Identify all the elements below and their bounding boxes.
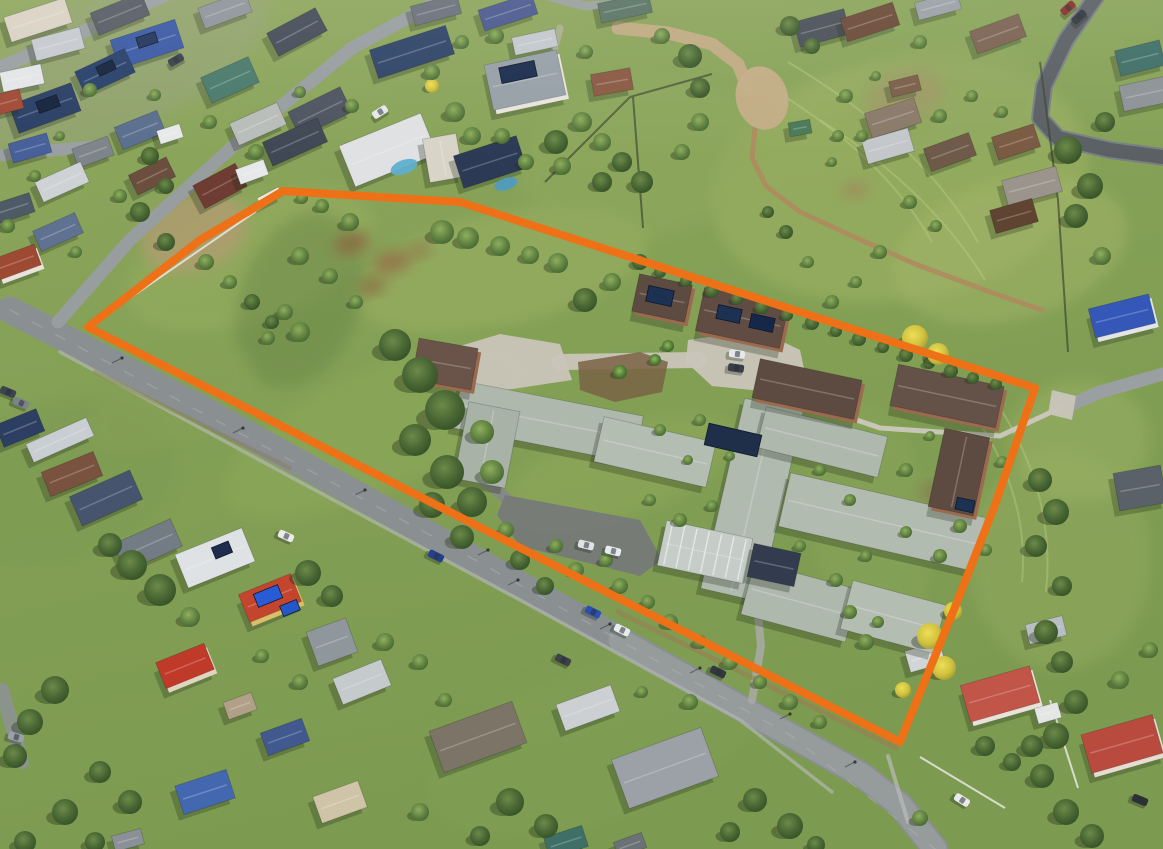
aerial-photo	[0, 0, 1163, 849]
aerial-photo-screenshot	[0, 0, 1163, 849]
atmospheric-haze	[0, 0, 1163, 160]
